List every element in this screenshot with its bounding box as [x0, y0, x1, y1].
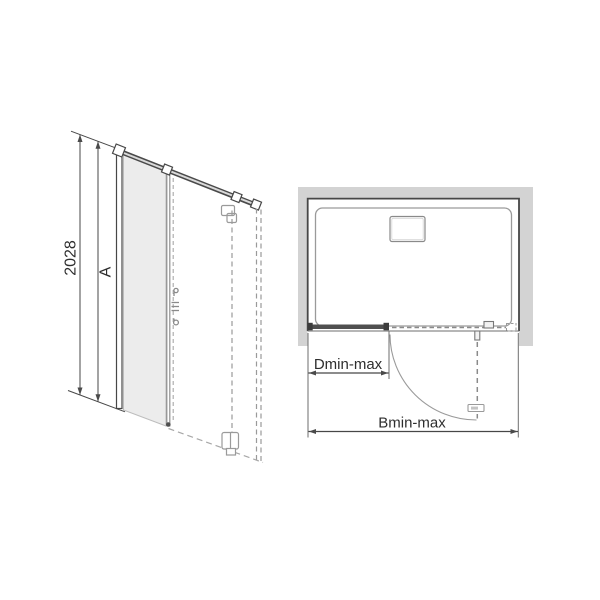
- fixed-glass-panel: [124, 155, 167, 427]
- drain: [390, 217, 425, 242]
- hinge-pivot: [475, 331, 480, 340]
- overall-height-label: 2028: [63, 240, 80, 276]
- bottom-pivot-hinge: [166, 422, 171, 427]
- dimension-total-width: Bmin-max: [309, 415, 519, 435]
- arrowhead-right: [511, 429, 518, 434]
- arrowhead-left: [309, 429, 316, 434]
- handle-grip: [471, 407, 478, 410]
- bracket-foot: [227, 449, 236, 456]
- wall-profile: [117, 149, 123, 409]
- dimension-glass-height: A: [96, 141, 115, 402]
- open-door-dashed-bottom: [169, 429, 264, 463]
- bottom-guide-bracket-icon: [222, 433, 239, 456]
- wall-profile-block: [308, 323, 313, 331]
- roller-carriage-icon: [222, 206, 237, 223]
- door-swing-arc: [390, 335, 477, 421]
- panel-end-block: [384, 323, 390, 331]
- wall-right: [519, 199, 533, 346]
- rail-end-cap-right: [251, 199, 262, 210]
- wall-left: [298, 199, 308, 346]
- door-handle-icon: [468, 405, 484, 412]
- fixed-panel-bar: [308, 325, 389, 330]
- handle-knob-bottom: [174, 320, 179, 325]
- glass-height-label: A: [98, 266, 115, 277]
- handle-hardware: [172, 288, 180, 325]
- door-width-label: Dmin-max: [314, 356, 383, 373]
- plan-view-diagram: Dmin-max Bmin-max: [298, 187, 533, 438]
- total-width-label: Bmin-max: [378, 415, 446, 432]
- technical-drawing-page: 2028 A: [0, 0, 600, 600]
- dimension-door-width: Dmin-max: [309, 356, 389, 376]
- front-elevation-diagram: 2028 A: [63, 131, 263, 462]
- shower-door-technical-drawing: 2028 A: [0, 0, 600, 600]
- drain-cover: [390, 217, 425, 242]
- wall-top: [298, 187, 533, 199]
- dimension-overall-height: 2028: [63, 135, 83, 396]
- hinge-plate: [484, 322, 494, 329]
- handle-knob-top: [174, 288, 178, 292]
